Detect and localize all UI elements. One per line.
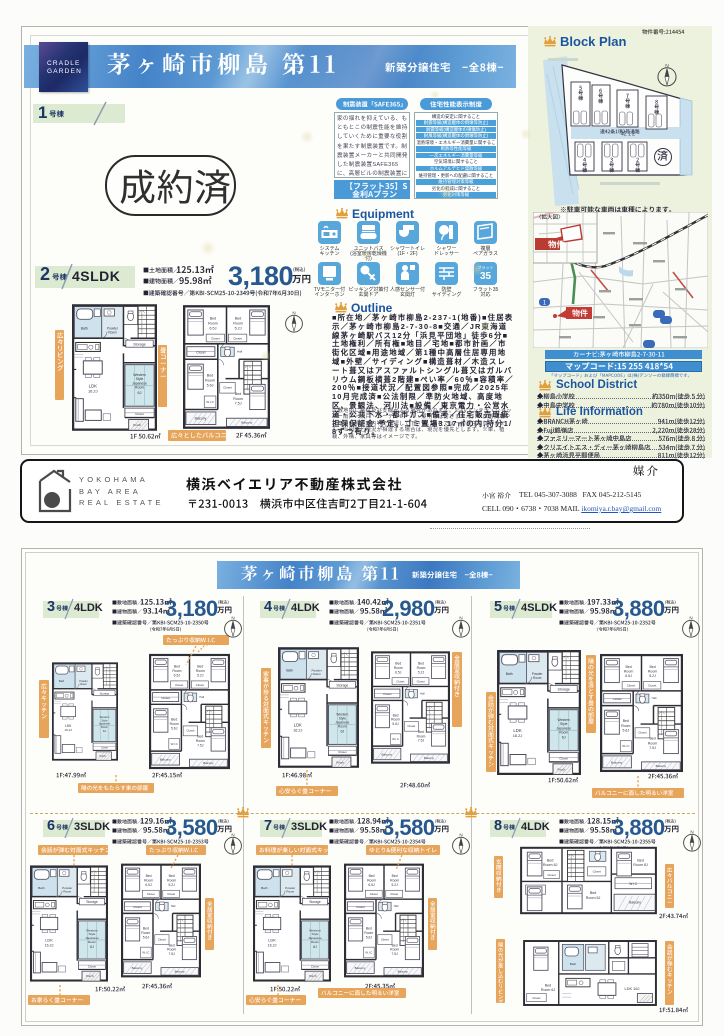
svg-text:N: N bbox=[690, 830, 693, 835]
svg-text:N: N bbox=[459, 833, 462, 838]
svg-text:N: N bbox=[292, 311, 295, 316]
svg-text:N: N bbox=[231, 833, 234, 838]
svg-text:N: N bbox=[231, 616, 234, 621]
svg-text:N: N bbox=[459, 616, 462, 621]
svg-text:N: N bbox=[689, 616, 692, 621]
svg-text:N: N bbox=[665, 63, 669, 69]
